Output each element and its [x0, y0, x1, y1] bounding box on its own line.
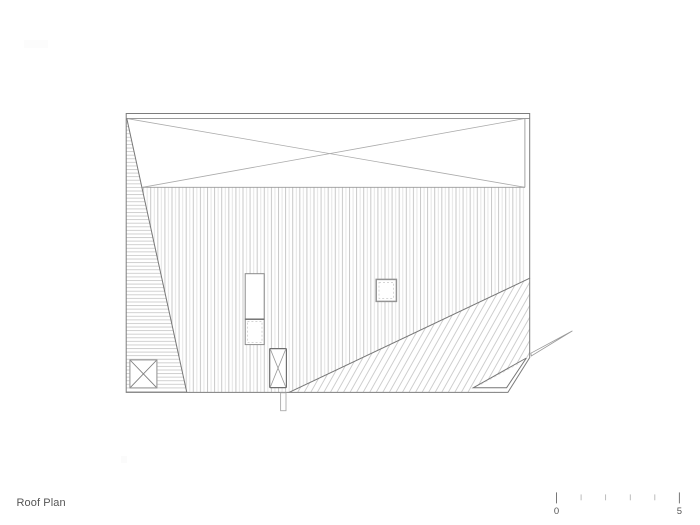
svg-text:5: 5	[677, 506, 682, 517]
svg-text:Roof Plan: Roof Plan	[17, 497, 66, 509]
svg-text:0: 0	[554, 506, 559, 517]
